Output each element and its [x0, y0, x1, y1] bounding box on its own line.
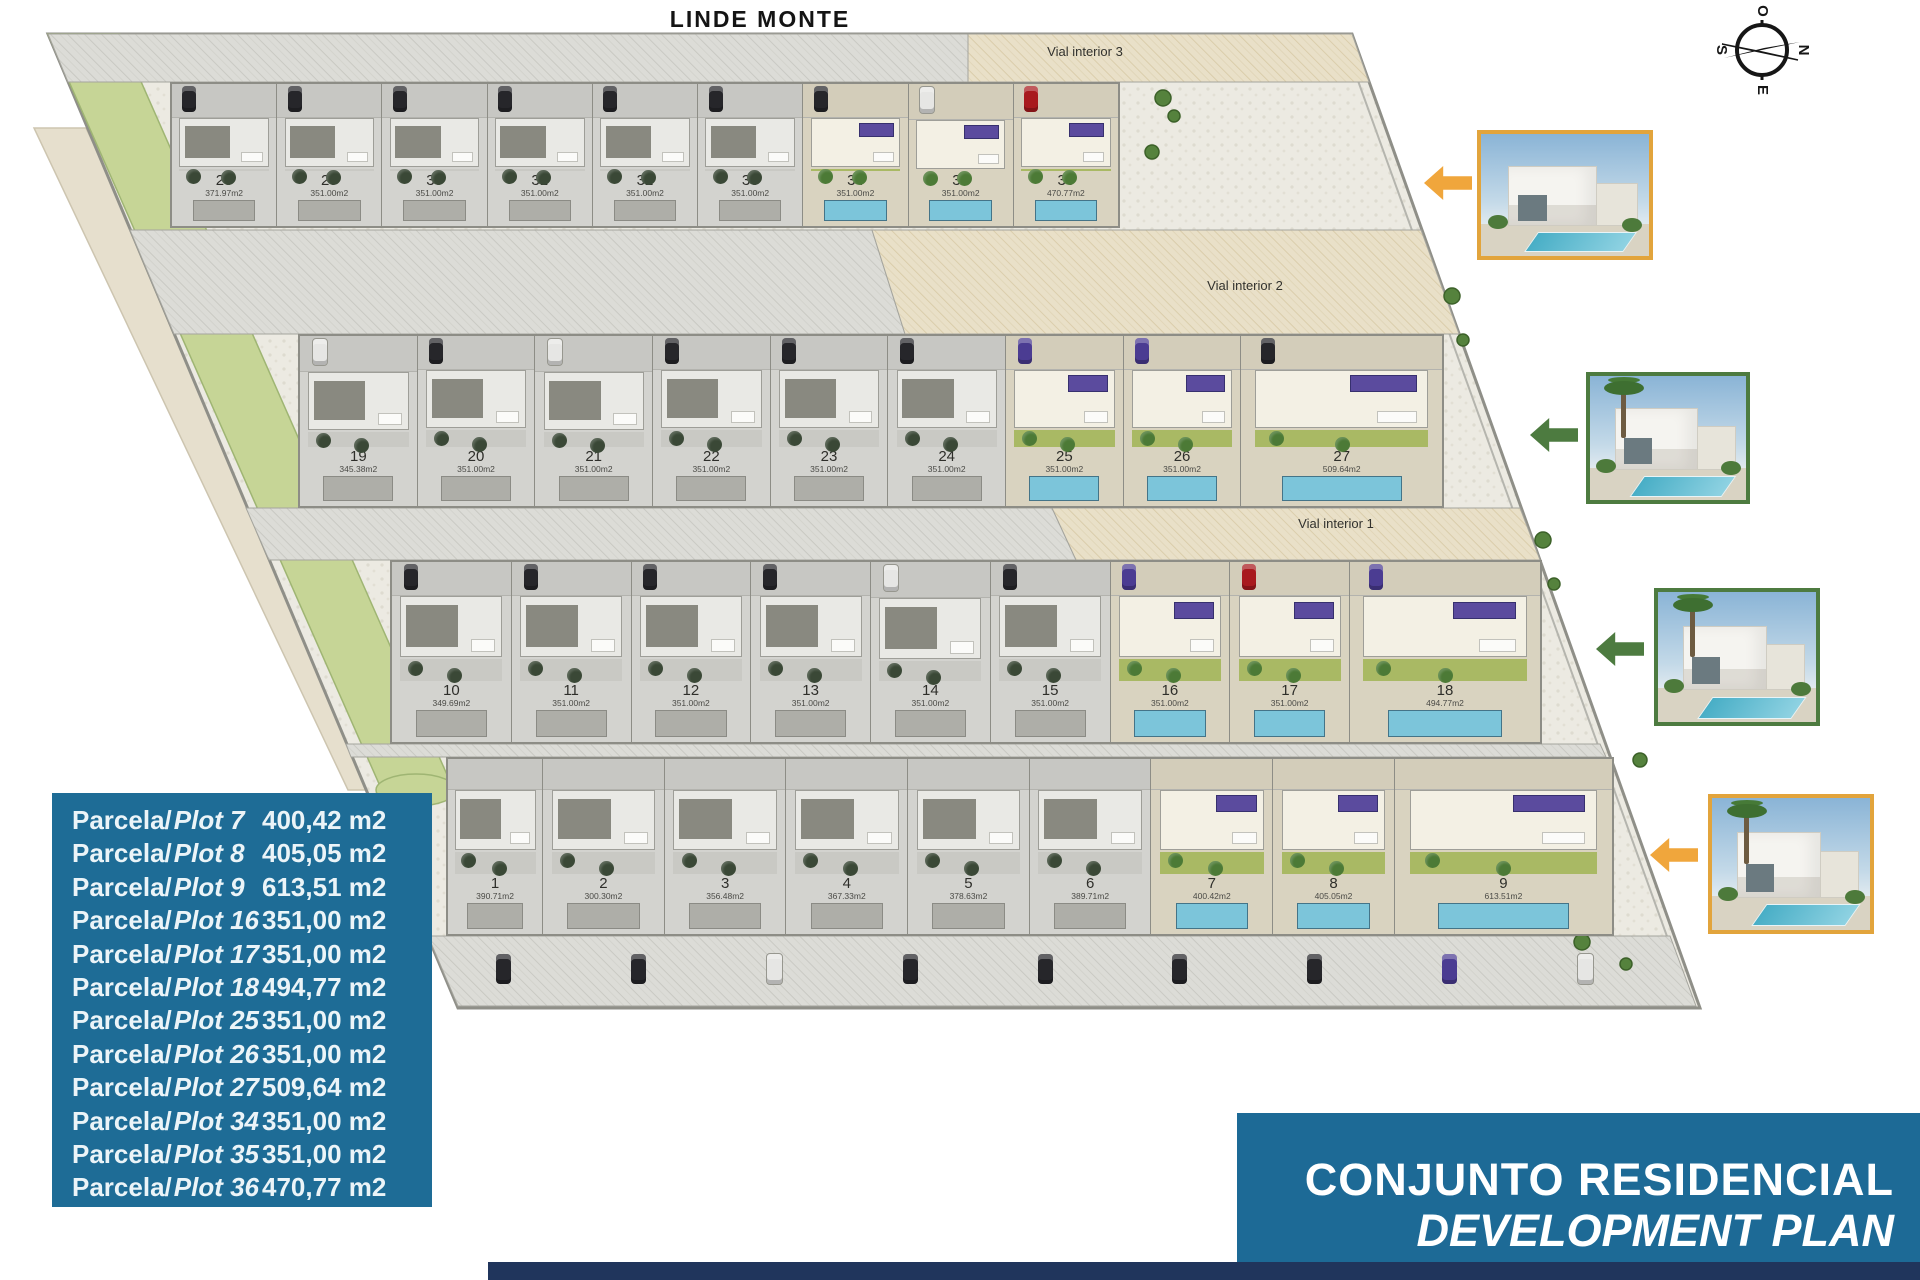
house-footprint [600, 118, 690, 167]
plot-34: 34351.00m2 [803, 84, 908, 226]
roof-patch [185, 126, 231, 159]
roof-patch [1005, 605, 1057, 647]
car-icon [1242, 564, 1256, 590]
legend-row: Parcela/Plot 27509,64 m2 [72, 1072, 412, 1105]
tree-icon [1335, 437, 1350, 452]
plot-label: 14351.00m2 [871, 681, 990, 709]
tree-icon [818, 169, 833, 184]
garden [520, 659, 622, 681]
plot-area: 351.00m2 [771, 465, 888, 474]
car-icon [288, 86, 302, 112]
plot-area: 351.00m2 [991, 699, 1110, 708]
legend-row: Parcela/Plot 8405,05 m2 [72, 838, 412, 871]
tree-icon [1425, 853, 1440, 868]
car-icon [919, 86, 935, 114]
house-footprint [661, 370, 761, 428]
tree-icon [502, 169, 517, 184]
plot-number: 9 [1395, 876, 1612, 892]
legend-row: Parcela/Plot 34351,00 m2 [72, 1106, 412, 1139]
plot-17: 17351.00m2 [1230, 562, 1350, 742]
plot-8: 8405.05m2 [1273, 759, 1395, 934]
tree-icon [1269, 431, 1284, 446]
tree-icon [1286, 668, 1301, 683]
driveway [535, 336, 652, 372]
house-footprint [308, 372, 408, 430]
plot-area: 351.00m2 [1006, 465, 1123, 474]
road-thin [346, 744, 1606, 757]
garden [426, 430, 526, 446]
car-icon [883, 564, 899, 592]
legend-row: Parcela/Plot 18494,77 m2 [72, 972, 412, 1005]
house-footprint [640, 596, 742, 657]
photo-pool [1630, 476, 1737, 497]
tree-icon [803, 853, 818, 868]
car-icon [1135, 338, 1149, 364]
plot-2: 2300.30m2 [543, 759, 665, 934]
garden [1014, 430, 1114, 446]
plot-6: 6389.71m2 [1030, 759, 1152, 934]
legend-plot-name: Parcela/Plot 16 [72, 905, 262, 936]
villa-photo-4 [1708, 794, 1874, 934]
title-line-en: DEVELOPMENT PLAN [1237, 1205, 1894, 1257]
plot-30: 30351.00m2 [382, 84, 487, 226]
palm-tree-icon [1621, 391, 1626, 438]
tree-icon [1329, 861, 1344, 876]
plot-label: 11351.00m2 [512, 681, 631, 709]
garden [1132, 430, 1232, 446]
roof-patch [432, 379, 483, 418]
plot-19: 19345.38m2 [300, 336, 418, 506]
car-icon [1122, 564, 1136, 590]
driveway [665, 759, 786, 790]
house-footprint [1410, 790, 1597, 850]
driveway [418, 336, 535, 370]
pool [441, 476, 511, 502]
car-icon [1261, 338, 1275, 364]
legend-row: Parcela/Plot 36470,77 m2 [72, 1172, 412, 1205]
plot-number: 11 [512, 683, 631, 699]
plot-25: 25351.00m2 [1006, 336, 1124, 506]
pool [323, 476, 393, 502]
pool [655, 710, 726, 737]
plot-11: 11351.00m2 [512, 562, 632, 742]
plot-label: 17351.00m2 [1230, 681, 1349, 709]
plot-21: 21351.00m2 [535, 336, 653, 506]
tree-icon [926, 670, 941, 685]
road-top-beige [968, 34, 1369, 82]
legend-row: Parcela/Plot 9613,51 m2 [72, 872, 412, 905]
car-icon [498, 86, 512, 112]
house-footprint [495, 118, 585, 167]
solar-panel-icon [1453, 602, 1516, 619]
car-icon [900, 338, 914, 364]
driveway [786, 759, 907, 790]
car-icon [903, 954, 918, 984]
roof-patch [679, 799, 732, 839]
tree-icon [326, 170, 341, 185]
garden [1021, 169, 1111, 171]
garden [661, 430, 761, 446]
driveway [300, 336, 417, 372]
tree-icon [747, 170, 762, 185]
house-footprint [179, 118, 269, 167]
garden [879, 661, 981, 681]
plot-area: 351.00m2 [535, 465, 652, 474]
legend-plot-name: Parcela/Plot 36 [72, 1172, 262, 1203]
plot-area: 351.00m2 [871, 699, 990, 708]
tree-icon [434, 431, 449, 446]
plot-area: 351.00m2 [277, 189, 381, 198]
car-icon [1369, 564, 1383, 590]
pool [1147, 476, 1217, 502]
driveway [1030, 759, 1151, 790]
plot-33: 33351.00m2 [698, 84, 803, 226]
pool [298, 200, 361, 221]
car-icon [709, 86, 723, 112]
garden [600, 169, 690, 171]
legend-row: Parcela/Plot 35351,00 m2 [72, 1139, 412, 1172]
legend-plot-name: Parcela/Plot 27 [72, 1072, 262, 1103]
house-footprint [544, 372, 644, 430]
driveway [593, 84, 697, 118]
plot-label: 4367.33m2 [786, 874, 907, 902]
plot-area: 509.64m2 [1241, 465, 1442, 474]
pool [536, 710, 607, 737]
plot-area: 351.00m2 [1124, 465, 1241, 474]
driveway [1151, 759, 1272, 790]
plot-number: 1 [448, 876, 542, 892]
photo-pool [1698, 697, 1807, 719]
plot-16: 16351.00m2 [1111, 562, 1231, 742]
plot-area: 356.48m2 [665, 892, 786, 901]
plot-18: 18494.77m2 [1350, 562, 1540, 742]
plot-number: 4 [786, 876, 907, 892]
car-icon [524, 564, 538, 590]
car-icon [429, 338, 443, 364]
driveway [1124, 336, 1241, 370]
pool [912, 476, 982, 502]
tree-icon [943, 437, 958, 452]
plot-number: 13 [751, 683, 870, 699]
pool [416, 710, 487, 737]
plot-35: 35351.00m2 [909, 84, 1014, 226]
house-footprint [1255, 370, 1428, 428]
tree-icon [599, 861, 614, 876]
plot-row-4: 1390.71m22300.30m23356.48m24367.33m25378… [446, 757, 1614, 936]
legend-plot-area: 400,42 m2 [262, 805, 412, 836]
tree-icon [1290, 853, 1305, 868]
road-label-vial-3: Vial interior 3 [1047, 44, 1123, 59]
garden [1239, 659, 1341, 681]
plot-number: 6 [1030, 876, 1151, 892]
tree-icon [887, 663, 902, 678]
plot-area: 351.00m2 [751, 699, 870, 708]
garden [552, 852, 656, 874]
bush-icon [1622, 218, 1642, 232]
legend-plot-area: 351,00 m2 [262, 939, 412, 970]
garden [1410, 852, 1597, 874]
house-footprint [1239, 596, 1341, 657]
driveway [488, 84, 592, 118]
plot-label: 6389.71m2 [1030, 874, 1151, 902]
legend: Parcela/Plot 7400,42 m2Parcela/Plot 8405… [52, 793, 432, 1207]
roof-patch [902, 379, 953, 418]
tree-icon [292, 169, 307, 184]
tree-icon [713, 169, 728, 184]
tree-icon [721, 861, 736, 876]
bottom-road-cars [470, 942, 1620, 996]
legend-plot-name: Parcela/Plot 17 [72, 939, 262, 970]
legend-plot-name: Parcela/Plot 9 [72, 872, 262, 903]
plot-27: 27509.64m2 [1241, 336, 1442, 506]
pool [1035, 200, 1098, 221]
tree-icon [1247, 661, 1262, 676]
pool [1029, 476, 1099, 502]
plot-area: 349.69m2 [392, 699, 511, 708]
plot-area: 371.97m2 [172, 189, 276, 198]
plot-5: 5378.63m2 [908, 759, 1030, 934]
roof-patch [500, 126, 546, 159]
legend-row: Parcela/Plot 25351,00 m2 [72, 1005, 412, 1038]
car-icon [1038, 954, 1053, 984]
road-2-grey [130, 230, 905, 334]
house-footprint [673, 790, 777, 850]
garden [705, 169, 795, 171]
pool [689, 903, 761, 929]
house-footprint [1282, 790, 1386, 850]
plot-area: 378.63m2 [908, 892, 1029, 901]
plot-label: 15351.00m2 [991, 681, 1110, 709]
tree-icon [431, 170, 446, 185]
tree-icon [552, 433, 567, 448]
roof-patch [549, 381, 600, 420]
house-footprint [1363, 596, 1526, 657]
driveway [908, 759, 1029, 790]
roof-patch [766, 605, 818, 647]
bush-icon [1488, 215, 1508, 229]
garden [760, 659, 862, 681]
house-footprint [1038, 790, 1142, 850]
villa-photo-2 [1586, 372, 1750, 504]
driveway [382, 84, 486, 118]
compass-south: S [1713, 45, 1730, 55]
roof-patch [460, 799, 501, 839]
villa-building [1508, 166, 1597, 227]
garden [400, 659, 502, 681]
pool [775, 710, 846, 737]
garden [1363, 659, 1526, 681]
plot-area: 613.51m2 [1395, 892, 1612, 901]
road-1-grey [246, 508, 1076, 560]
plot-area: 405.05m2 [1273, 892, 1394, 901]
plot-20: 20351.00m2 [418, 336, 536, 506]
plot-10: 10349.69m2 [392, 562, 512, 742]
driveway [1111, 562, 1230, 596]
plot-31: 31351.00m2 [488, 84, 593, 226]
car-icon [643, 564, 657, 590]
house-footprint [1160, 790, 1264, 850]
tree-icon [641, 170, 656, 185]
roof-patch [290, 126, 336, 159]
pool [1254, 710, 1325, 737]
legend-plot-name: Parcela/Plot 25 [72, 1005, 262, 1036]
car-icon [763, 564, 777, 590]
compass-rose-icon: O N E S [1712, 2, 1812, 102]
solar-panel-icon [1338, 795, 1379, 812]
pool [1438, 903, 1568, 929]
plot-label: 1390.71m2 [448, 874, 542, 902]
pool [1297, 903, 1369, 929]
roof-patch [646, 605, 698, 647]
plot-13: 13351.00m2 [751, 562, 871, 742]
car-icon [547, 338, 563, 366]
legend-plot-name: Parcela/Plot 18 [72, 972, 262, 1003]
solar-panel-icon [859, 123, 894, 137]
road-label-vial-2: Vial interior 2 [1207, 278, 1283, 293]
solar-panel-icon [1216, 795, 1257, 812]
house-footprint [455, 790, 536, 850]
legend-row: Parcela/Plot 26351,00 m2 [72, 1039, 412, 1072]
pool [1054, 903, 1126, 929]
plot-row-1: 28371.97m229351.00m230351.00m231351.00m2… [170, 82, 1120, 228]
car-icon [782, 338, 796, 364]
solar-panel-icon [1186, 375, 1225, 392]
legend-row: Parcela/Plot 7400,42 m2 [72, 805, 412, 838]
legend-plot-area: 351,00 m2 [262, 1005, 412, 1036]
road-top-grey [48, 34, 968, 82]
plot-label: 7400.42m2 [1151, 874, 1272, 902]
plot-area: 351.00m2 [512, 699, 631, 708]
garden [640, 659, 742, 681]
car-icon [603, 86, 617, 112]
pool [1388, 710, 1502, 737]
driveway [1006, 336, 1123, 370]
pool [719, 200, 782, 221]
plot-area: 351.00m2 [488, 189, 592, 198]
plot-area: 351.00m2 [418, 465, 535, 474]
roof-patch [711, 126, 757, 159]
pool [932, 903, 1004, 929]
car-icon [1018, 338, 1032, 364]
plot-number: 16 [1111, 683, 1230, 699]
legend-plot-area: 351,00 m2 [262, 905, 412, 936]
garden [544, 432, 644, 446]
garden [390, 169, 480, 171]
legend-plot-area: 351,00 m2 [262, 1139, 412, 1170]
tree-icon [964, 861, 979, 876]
tree-icon [590, 438, 605, 453]
legend-plot-name: Parcela/Plot 7 [72, 805, 262, 836]
driveway [991, 562, 1110, 596]
pool [676, 476, 746, 502]
car-icon [631, 954, 646, 984]
roof-patch [314, 381, 365, 420]
plot-label: 13351.00m2 [751, 681, 870, 709]
compass-east: E [1754, 85, 1771, 95]
photo-pool [1752, 904, 1861, 926]
villa-building [1615, 408, 1698, 470]
garden [495, 169, 585, 171]
plot-26: 26351.00m2 [1124, 336, 1242, 506]
house-footprint [999, 596, 1101, 657]
plot-label: 18494.77m2 [1350, 681, 1540, 709]
plot-12: 12351.00m2 [632, 562, 752, 742]
driveway [392, 562, 511, 596]
car-icon [496, 954, 511, 984]
pool [403, 200, 466, 221]
car-icon [1172, 954, 1187, 984]
garden [308, 432, 408, 446]
plot-area: 351.00m2 [1111, 699, 1230, 708]
car-icon [312, 338, 328, 366]
car-icon [766, 953, 783, 985]
house-footprint [795, 790, 899, 850]
footer-bar [488, 1262, 1920, 1280]
tree-icon [536, 170, 551, 185]
villa-building [1737, 832, 1821, 897]
villa-photo-1 [1477, 130, 1653, 260]
legend-row: Parcela/Plot 17351,00 m2 [72, 939, 412, 972]
pool [929, 200, 992, 221]
tree-icon [1127, 661, 1142, 676]
bush-icon [1791, 682, 1811, 696]
house-footprint [552, 790, 656, 850]
roof-patch [406, 605, 458, 647]
garden [1038, 852, 1142, 874]
tree-icon [1208, 861, 1223, 876]
plot-label: 8405.05m2 [1273, 874, 1394, 902]
driveway [1395, 759, 1612, 790]
driveway [1273, 759, 1394, 790]
garden [1255, 430, 1428, 446]
garden [779, 430, 879, 446]
car-icon [1003, 564, 1017, 590]
plot-area: 351.00m2 [1230, 699, 1349, 708]
house-footprint [760, 596, 862, 657]
tree-icon [492, 861, 507, 876]
garden [673, 852, 777, 874]
plot-label: 16351.00m2 [1111, 681, 1230, 709]
plot-number: 8 [1273, 876, 1394, 892]
driveway [698, 84, 802, 118]
garden [897, 430, 997, 446]
house-footprint [779, 370, 879, 428]
house-footprint [897, 370, 997, 428]
plot-label: 10349.69m2 [392, 681, 511, 709]
house-footprint [879, 598, 981, 659]
pool [1134, 710, 1205, 737]
pool [1282, 476, 1402, 502]
tree-icon [852, 170, 867, 185]
plot-1: 1390.71m2 [448, 759, 543, 934]
plot-area: 351.00m2 [653, 465, 770, 474]
tree-icon [461, 853, 476, 868]
plot-number: 3 [665, 876, 786, 892]
garden [811, 169, 901, 171]
plot-label: 5378.63m2 [908, 874, 1029, 902]
driveway [771, 336, 888, 370]
car-icon [1307, 954, 1322, 984]
plot-number: 5 [908, 876, 1029, 892]
garden [1160, 852, 1264, 874]
roof-patch [785, 379, 836, 418]
plot-area: 351.00m2 [632, 699, 751, 708]
compass-north: N [1795, 45, 1812, 56]
plot-number: 10 [392, 683, 511, 699]
plot-number: 17 [1230, 683, 1349, 699]
plot-label: 9613.51m2 [1395, 874, 1612, 902]
roof-patch [606, 126, 652, 159]
